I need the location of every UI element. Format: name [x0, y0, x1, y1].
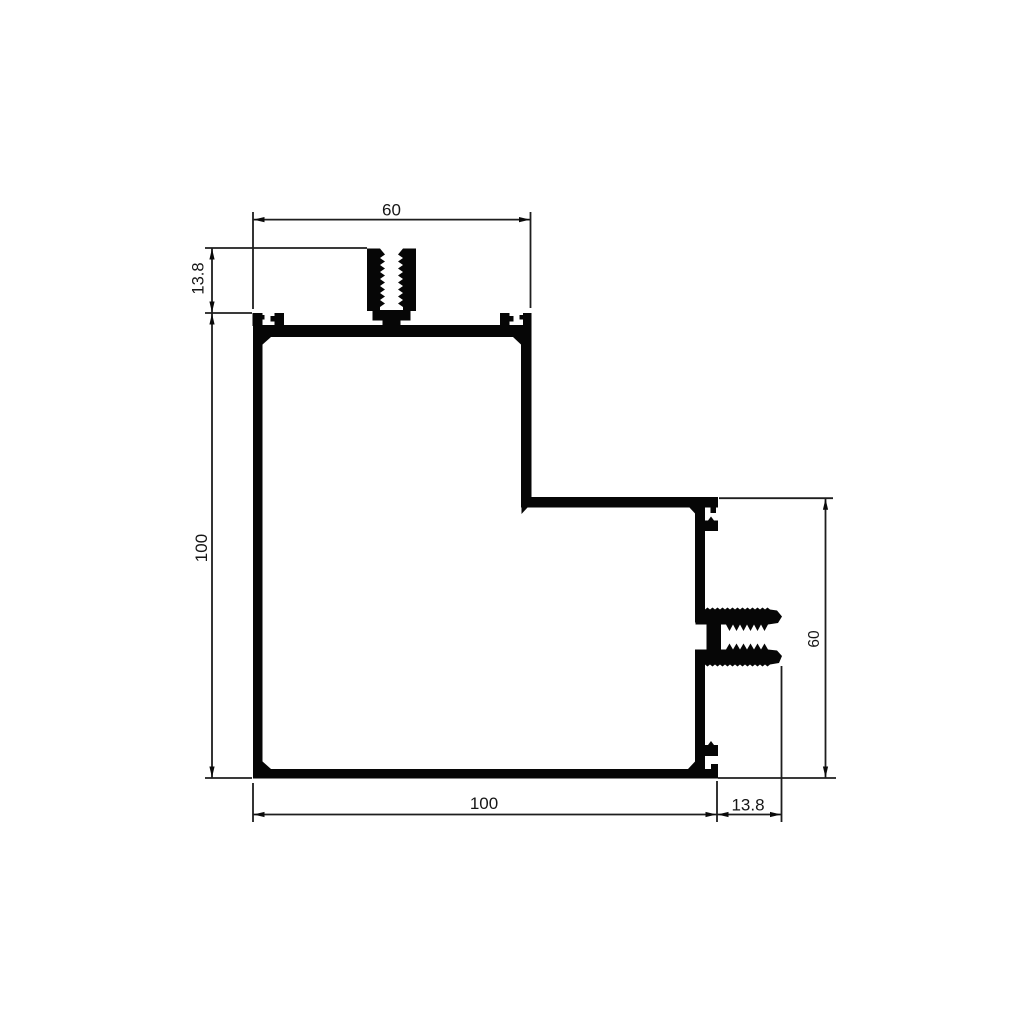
- svg-text:60: 60: [806, 630, 823, 648]
- svg-text:100: 100: [470, 794, 498, 813]
- svg-text:13.8: 13.8: [731, 796, 764, 815]
- svg-text:60: 60: [382, 201, 401, 220]
- svg-text:13.8: 13.8: [190, 262, 208, 294]
- svg-text:100: 100: [192, 534, 211, 562]
